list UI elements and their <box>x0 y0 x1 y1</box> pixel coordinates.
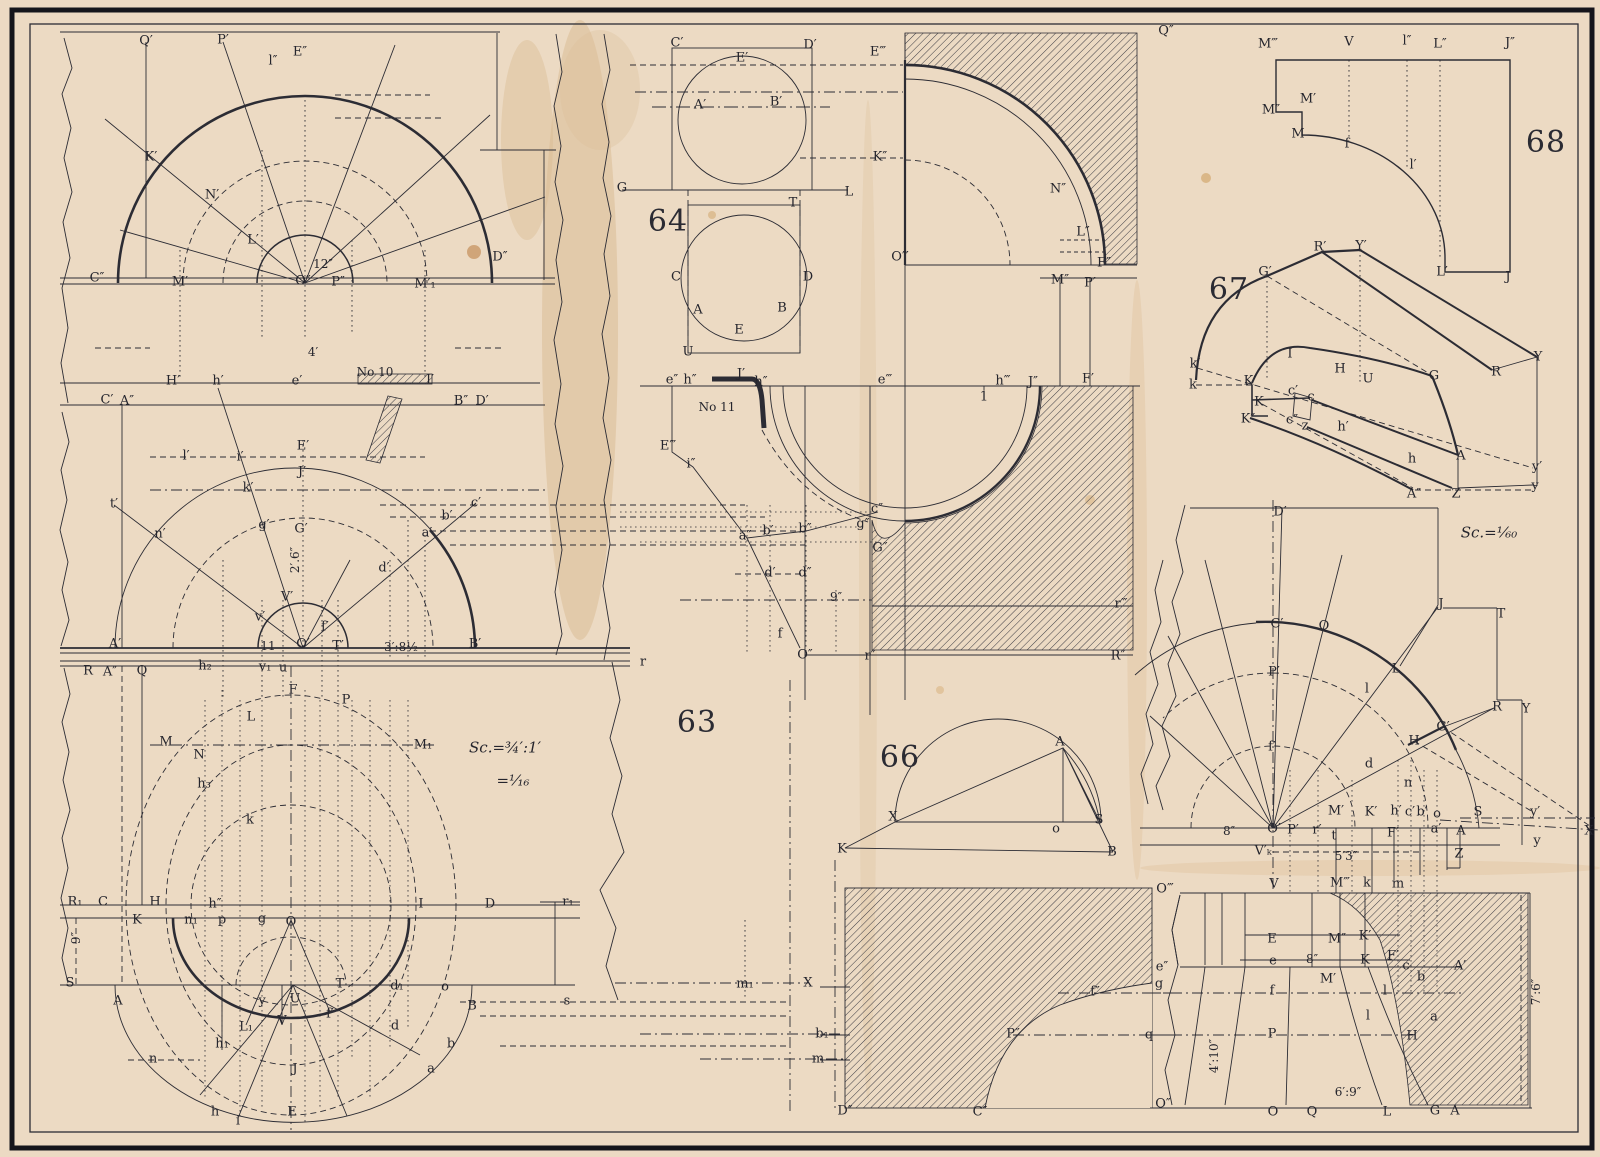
point-label: U <box>683 346 694 359</box>
point-label: h′ <box>1337 421 1348 434</box>
point-label: P <box>342 694 351 707</box>
point-label: O‴ <box>891 251 908 264</box>
figure-number: 68 <box>1526 128 1566 158</box>
point-label: h₂ <box>198 660 212 673</box>
point-label: K <box>1254 396 1264 409</box>
point-label: h″ <box>208 898 221 911</box>
point-label: k′ <box>243 482 254 495</box>
point-label: r″ <box>864 650 875 663</box>
point-label: K <box>132 914 142 927</box>
point-label: P″ <box>331 276 345 289</box>
point-label: p <box>218 914 226 927</box>
point-label: F″ <box>1097 257 1111 270</box>
point-label: f <box>1345 138 1350 151</box>
point-label: d <box>391 1020 399 1033</box>
point-label: d′ <box>378 562 389 575</box>
scale-label: Sc.=¹⁄₆₀ <box>1461 526 1518 541</box>
point-label: z <box>1302 420 1309 433</box>
point-label: F <box>288 684 297 697</box>
point-label: e″ <box>666 374 679 387</box>
point-label: K′ <box>1359 930 1372 943</box>
point-label: M‴ <box>1330 877 1350 890</box>
point-label: u <box>279 662 287 675</box>
point-label: E‴ <box>660 440 676 453</box>
point-label: M <box>159 736 172 749</box>
scale-label: Sc.=¾′:1′ <box>469 741 541 756</box>
point-label: H <box>149 896 160 909</box>
point-label: D′ <box>1273 506 1286 519</box>
point-label: A <box>693 304 702 317</box>
point-label: K′ <box>1244 375 1257 388</box>
point-label: a <box>1430 1011 1438 1024</box>
point-label: c″ <box>1286 414 1298 427</box>
point-label: y <box>258 995 265 1008</box>
point-label: E <box>734 324 744 337</box>
point-label: k <box>246 814 254 827</box>
point-label: G′ <box>1258 266 1271 279</box>
point-label: f′ <box>1268 741 1276 754</box>
point-label: M₁ <box>414 739 433 752</box>
point-label: c′ <box>1405 806 1415 819</box>
point-label: D <box>803 271 813 284</box>
point-label: E″ <box>293 46 307 59</box>
point-label: 1 <box>980 391 988 404</box>
point-label: V <box>277 1015 286 1028</box>
point-label: d″ <box>798 567 811 580</box>
point-label: B″ <box>454 395 468 408</box>
point-label: M″ <box>1051 274 1069 287</box>
point-label: k′ <box>1190 358 1201 371</box>
point-label: V <box>1269 878 1278 891</box>
point-label: m₁ <box>736 978 754 991</box>
point-label: r‴ <box>1115 598 1128 611</box>
point-label: f′ <box>321 621 329 634</box>
point-label: G <box>1430 1105 1440 1118</box>
point-label: a″ <box>739 530 752 543</box>
point-label: A′ <box>109 638 121 651</box>
point-label: B′ <box>469 638 482 651</box>
point-label: M″ <box>1328 933 1346 946</box>
point-label: M′ <box>1328 805 1344 818</box>
point-label: E′ <box>736 52 748 65</box>
point-label: M′₁ <box>414 278 435 291</box>
point-label: K <box>1360 954 1370 967</box>
point-label: X <box>803 977 812 990</box>
point-label: c <box>1307 391 1314 404</box>
scale-label: =¹⁄₁₆ <box>496 774 529 789</box>
point-label: X <box>1584 825 1593 838</box>
point-label: O″ <box>1155 1098 1171 1111</box>
point-label: L <box>1383 1106 1392 1119</box>
point-label: P″ <box>1006 1028 1020 1041</box>
point-label: h″ <box>683 374 696 387</box>
point-label: P′ <box>1287 824 1299 837</box>
point-label: t′ <box>110 498 118 511</box>
point-label: G″ <box>872 542 887 555</box>
point-label: V′ <box>281 591 293 604</box>
point-label: l″ <box>1402 35 1411 48</box>
point-label: G′ <box>294 523 307 536</box>
point-label: n <box>149 1053 157 1066</box>
point-label: E <box>1267 933 1277 946</box>
point-label: l′ <box>1409 159 1416 172</box>
point-label: Y <box>1534 351 1543 364</box>
point-label: Y′ <box>1355 240 1367 253</box>
point-label: l <box>1365 683 1369 696</box>
point-label: J″ <box>1028 376 1038 389</box>
figure-number: 67 <box>1209 275 1249 305</box>
point-label: i″ <box>686 458 695 471</box>
point-label: P′ <box>1084 277 1096 290</box>
dimension-label: 9″ <box>70 932 82 944</box>
point-label: f <box>778 628 783 641</box>
point-label: b′ <box>1416 806 1427 819</box>
point-label: H <box>1406 1030 1417 1043</box>
figure-number: 66 <box>880 743 920 773</box>
point-label: h′ <box>1390 805 1401 818</box>
point-label: C″ <box>973 1106 988 1119</box>
point-label: O″ <box>797 649 813 662</box>
point-label: O‴ <box>1156 883 1173 896</box>
point-label: M′ <box>172 276 188 289</box>
point-label: L₁ <box>239 1021 253 1034</box>
point-label: q <box>1145 1029 1153 1042</box>
point-label: F′ <box>1387 950 1399 963</box>
point-label: r <box>640 656 646 669</box>
point-label: b <box>1417 971 1425 984</box>
dimension-label: 9″ <box>830 591 842 603</box>
point-label: y′ <box>1532 461 1542 474</box>
point-label: G′ <box>1436 721 1449 734</box>
point-label: J′ <box>298 466 306 479</box>
figure-number: 63 <box>677 708 717 738</box>
point-label: e″ <box>1156 961 1169 974</box>
point-label: Q <box>137 665 148 678</box>
point-label: f″ <box>1090 986 1100 999</box>
point-label: O <box>1268 1106 1279 1119</box>
point-label: b <box>447 1038 455 1051</box>
point-label: C <box>98 896 108 909</box>
point-label: h″ <box>754 376 767 389</box>
point-label: i′ <box>236 451 243 464</box>
point-label: h′ <box>212 375 223 388</box>
point-label: E <box>287 1106 297 1119</box>
point-label: b′ <box>441 510 452 523</box>
point-label: M‴ <box>1258 38 1278 51</box>
point-label: A <box>1055 736 1064 749</box>
point-label: H′ <box>166 375 180 388</box>
point-label: B <box>1107 846 1117 859</box>
point-label: P′ <box>217 34 229 47</box>
point-label: k <box>1189 379 1197 392</box>
point-label: L <box>845 186 854 199</box>
point-label: B′ <box>770 96 783 109</box>
point-label: M′ <box>1300 93 1316 106</box>
point-label: K″ <box>873 151 888 164</box>
point-label: C′ <box>671 37 684 50</box>
point-label: y <box>1533 835 1540 848</box>
point-label: d′ <box>764 567 775 580</box>
point-label: C <box>671 271 681 284</box>
point-label: F′ <box>1082 373 1094 386</box>
dimension-label: 8″ <box>1223 825 1235 837</box>
point-label: A′ <box>694 99 706 112</box>
point-label: M <box>1291 128 1304 141</box>
point-label: O <box>286 916 297 929</box>
point-label: J′ <box>737 368 745 381</box>
point-label: Z <box>1451 488 1460 501</box>
point-label: G <box>617 182 627 195</box>
point-label: n <box>1404 777 1412 790</box>
dimension-label: 4′:10″ <box>1208 1039 1220 1073</box>
point-label: L <box>247 711 256 724</box>
point-label: N <box>193 749 204 762</box>
dimension-label: No 10 <box>357 366 394 378</box>
point-label: B <box>467 1000 477 1013</box>
point-label: K′ <box>145 151 158 164</box>
point-label: Z <box>1454 848 1463 861</box>
point-label: a <box>427 1063 435 1076</box>
point-label: A <box>1456 450 1465 463</box>
point-label: H <box>1408 735 1419 748</box>
point-label: D″ <box>837 1105 852 1118</box>
point-label: y′ <box>1530 806 1540 819</box>
dimension-label: 3′:8½ <box>384 641 418 653</box>
point-label: T′ <box>332 640 344 653</box>
point-label: g <box>1155 978 1163 991</box>
point-label: L <box>1392 663 1401 676</box>
point-label: f <box>1270 985 1275 998</box>
point-label: J <box>292 1063 297 1076</box>
dimension-label: 6′:9″ <box>1335 1086 1362 1098</box>
point-label: g″ <box>856 518 869 531</box>
point-label: J <box>1438 598 1443 611</box>
point-label: o <box>1052 823 1060 836</box>
point-label: h₁ <box>215 1038 229 1051</box>
point-label: T <box>336 978 345 991</box>
point-label: M″ <box>1262 104 1280 117</box>
point-label: I′ <box>426 374 434 387</box>
point-label: U <box>290 993 301 1006</box>
point-label: X <box>888 811 897 824</box>
point-label: r₁ <box>562 896 573 909</box>
point-label: v′ <box>255 611 265 624</box>
point-label: Q <box>1307 1106 1318 1119</box>
point-label: V′ₖ <box>1254 845 1271 858</box>
point-label: m <box>1392 878 1404 891</box>
point-label: R′ <box>1314 241 1327 254</box>
point-label: P <box>1268 1028 1277 1041</box>
point-label: D <box>485 898 495 911</box>
point-label: J <box>1505 271 1510 284</box>
point-label: C′ <box>101 394 114 407</box>
point-label: H <box>1334 363 1345 376</box>
point-label: A″ <box>1407 488 1421 501</box>
point-label: d <box>1365 758 1373 771</box>
point-label: D′ <box>803 39 816 52</box>
point-label: h <box>1408 453 1416 466</box>
point-label: n₁ <box>184 914 198 927</box>
point-label: g <box>258 913 266 926</box>
point-label: B <box>777 302 787 315</box>
point-label: O′ <box>1267 823 1281 836</box>
point-label: D′ <box>475 395 488 408</box>
point-label: P′ <box>1268 666 1280 679</box>
dimension-label: No 11 <box>699 401 736 413</box>
point-label: R″ <box>1111 650 1126 663</box>
point-label: I <box>1287 348 1292 361</box>
point-label: O″ <box>295 275 311 288</box>
point-label: h‴ <box>995 375 1010 388</box>
point-label: o <box>441 981 449 994</box>
dimension-label: 2′.6″ <box>289 547 301 573</box>
figure-labels: 6364666768Sc.=¾′:1′=¹⁄₁₆Sc.=¹⁄₆₀12″4′2′.… <box>0 0 1600 1157</box>
point-label: N′ <box>205 189 219 202</box>
dimension-label: 5′3″ <box>1335 850 1357 862</box>
point-label: R₁ <box>68 896 83 909</box>
point-label: t <box>1331 830 1336 843</box>
point-label: N″ <box>1050 183 1066 196</box>
point-label: y <box>1531 480 1538 493</box>
point-label: h <box>211 1106 219 1119</box>
point-label: K′ <box>1365 806 1378 819</box>
point-label: d₁ <box>390 980 404 993</box>
point-label: K″ <box>1241 413 1256 426</box>
point-label: G <box>1429 370 1439 383</box>
point-label: A <box>113 995 122 1008</box>
point-label: a′ <box>422 527 433 540</box>
point-label: L′ <box>1436 266 1448 279</box>
figure-number: 64 <box>648 207 688 237</box>
point-label: L′ <box>247 234 259 247</box>
point-label: M′ <box>1320 973 1336 986</box>
point-label: e′ <box>292 375 303 388</box>
point-label: g′ <box>258 519 269 532</box>
point-label: K <box>837 843 847 856</box>
point-label: Q <box>1319 620 1330 633</box>
point-label: n′ <box>154 528 165 541</box>
point-label: L″ <box>1076 226 1090 239</box>
point-label: A′ <box>1454 960 1466 973</box>
point-label: f′ <box>326 1008 334 1021</box>
point-label: F′ <box>1387 827 1399 840</box>
point-label: o <box>1433 808 1441 821</box>
point-label: c′ <box>1288 385 1298 398</box>
point-label: E′ <box>297 440 309 453</box>
point-label: A <box>1450 1105 1459 1118</box>
dimension-label: 4′ <box>308 346 318 358</box>
point-label: A <box>1456 825 1465 838</box>
point-label: k <box>1363 877 1371 890</box>
point-label: A″ <box>120 395 134 408</box>
point-label: C″ <box>90 272 105 285</box>
point-label: b₁ <box>815 1028 829 1041</box>
point-label: R <box>83 665 93 678</box>
point-label: S <box>1095 814 1104 827</box>
point-label: A″ <box>103 666 117 679</box>
point-label: b′ <box>762 525 773 538</box>
point-label: b″ <box>798 523 811 536</box>
point-label: l <box>1366 1010 1370 1023</box>
point-label: L″ <box>1433 38 1447 51</box>
point-label: e‴ <box>878 374 892 387</box>
point-label: l′ <box>182 450 189 463</box>
point-label: D″ <box>492 251 507 264</box>
point-label: c <box>1402 960 1409 973</box>
point-label: R <box>1491 366 1501 379</box>
point-label: r′ <box>1312 824 1321 837</box>
point-label: l <box>1383 985 1387 998</box>
point-label: Q″ <box>1158 25 1174 38</box>
point-label: h₃ <box>197 778 211 791</box>
point-label: Q′ <box>139 35 153 48</box>
point-label: c″ <box>871 503 883 516</box>
dimension-label: 12″ <box>313 258 333 270</box>
point-label: S <box>1474 806 1483 819</box>
point-label: s <box>564 995 571 1008</box>
dimension-label: 11 <box>260 640 275 652</box>
point-label: O′ <box>296 638 310 651</box>
point-label: V <box>1344 36 1353 49</box>
point-label: a′ <box>1431 823 1442 836</box>
point-label: c′ <box>471 497 481 510</box>
point-label: v₁ <box>259 661 272 674</box>
point-label: T <box>789 197 798 210</box>
dimension-label: 8″ <box>1306 953 1318 965</box>
point-label: e <box>1269 955 1277 968</box>
point-label: S <box>66 977 75 990</box>
point-label: C′ <box>1271 618 1284 631</box>
point-label: m <box>812 1053 824 1066</box>
point-label: I <box>418 898 423 911</box>
dimension-label: 7′:6″ <box>1530 979 1542 1006</box>
point-label: J″ <box>1505 37 1515 50</box>
point-label: T <box>1497 608 1506 621</box>
point-label: l″ <box>268 55 277 68</box>
point-label: U <box>1363 373 1374 386</box>
point-label: Y <box>1522 703 1531 716</box>
point-label: E‴ <box>870 46 886 59</box>
point-label: i <box>236 1115 240 1128</box>
point-label: R <box>1492 701 1502 714</box>
engraved-plate: 6364666768Sc.=¾′:1′=¹⁄₁₆Sc.=¹⁄₆₀12″4′2′.… <box>0 0 1600 1157</box>
